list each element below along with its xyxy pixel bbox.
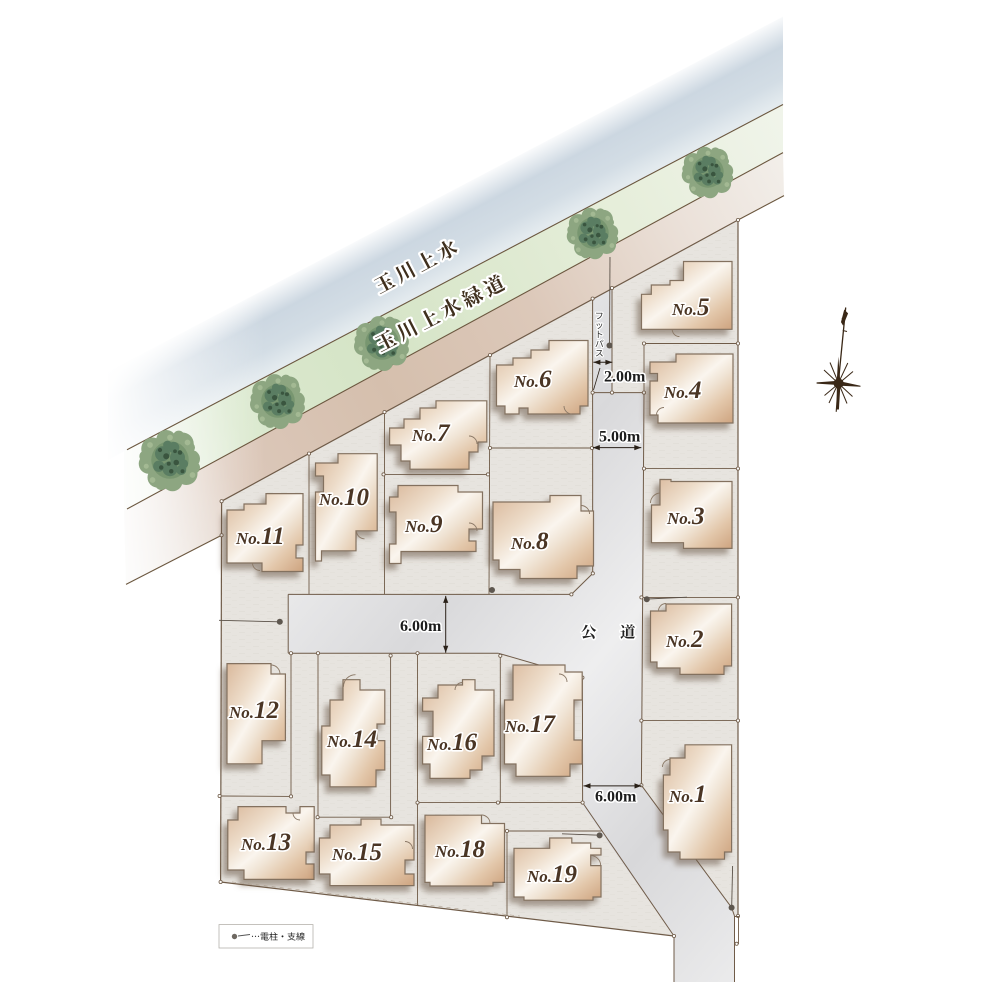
svg-text:2.00m: 2.00m	[604, 369, 646, 386]
svg-text:6.00m: 6.00m	[400, 618, 442, 635]
svg-text:6.00m: 6.00m	[595, 789, 637, 806]
svg-text:5.00m: 5.00m	[599, 429, 641, 446]
